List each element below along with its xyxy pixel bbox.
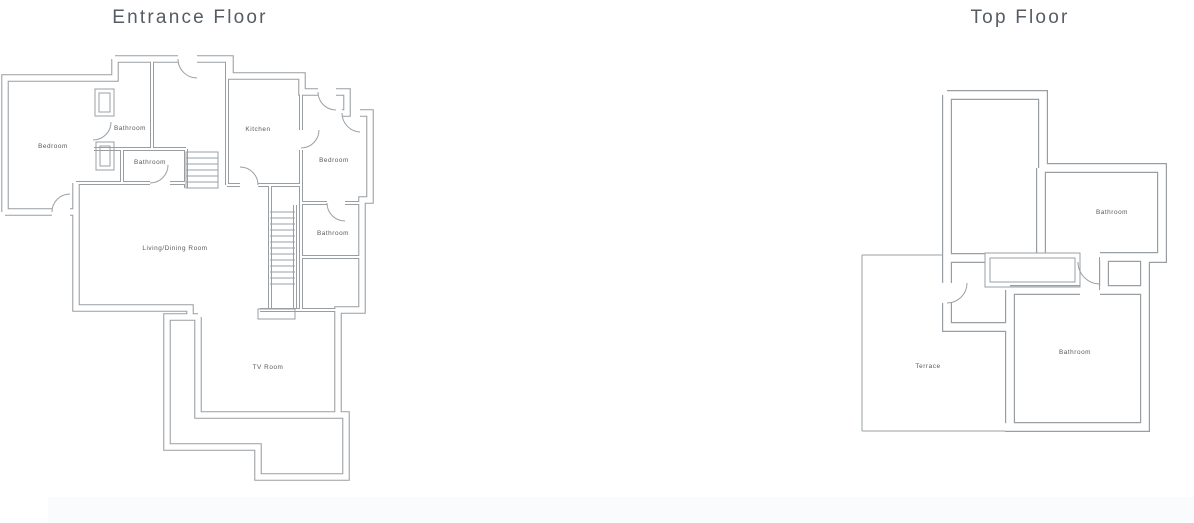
floorplan-page: Entrance Floor Top Floor Bedroom Bathroo… bbox=[0, 0, 1194, 523]
room-label-bathroom-middle: Bathroom bbox=[134, 159, 166, 166]
plan-title-entrance-floor: Entrance Floor bbox=[112, 7, 267, 28]
room-label-bathroom-right: Bathroom bbox=[317, 230, 349, 237]
footer-bar bbox=[48, 497, 1194, 523]
closet-symbols bbox=[95, 89, 114, 170]
room-label-bedroom-left: Bedroom bbox=[38, 143, 68, 150]
room-label-tv-room: TV Room bbox=[253, 364, 284, 371]
stairs-lower bbox=[258, 212, 295, 319]
room-label-bedroom-right: Bedroom bbox=[319, 157, 349, 164]
room-label-bathroom-top-floor-lower: Bathroom bbox=[1059, 349, 1091, 356]
entrance-floor-exterior-walls-core bbox=[5, 59, 370, 477]
door-arcs-entrance bbox=[52, 59, 360, 221]
terrace-outline bbox=[862, 255, 1005, 431]
top-floor-interior-walls-core bbox=[947, 168, 1162, 290]
room-label-living-dining: Living/Dining Room bbox=[142, 245, 207, 252]
closet-symbol-top-floor bbox=[985, 253, 1080, 287]
room-label-terrace: Terrace bbox=[915, 363, 940, 370]
stairs-upper bbox=[186, 152, 218, 188]
floor-plans-canvas: Entrance Floor Top Floor Bedroom Bathroo… bbox=[0, 0, 1194, 523]
room-label-kitchen: Kitchen bbox=[245, 126, 270, 133]
plan-title-top-floor: Top Floor bbox=[970, 7, 1069, 28]
top-floor-interior-walls bbox=[947, 168, 1162, 290]
room-label-bathroom-top: Bathroom bbox=[114, 125, 146, 132]
room-label-bathroom-top-floor-upper: Bathroom bbox=[1096, 209, 1128, 216]
